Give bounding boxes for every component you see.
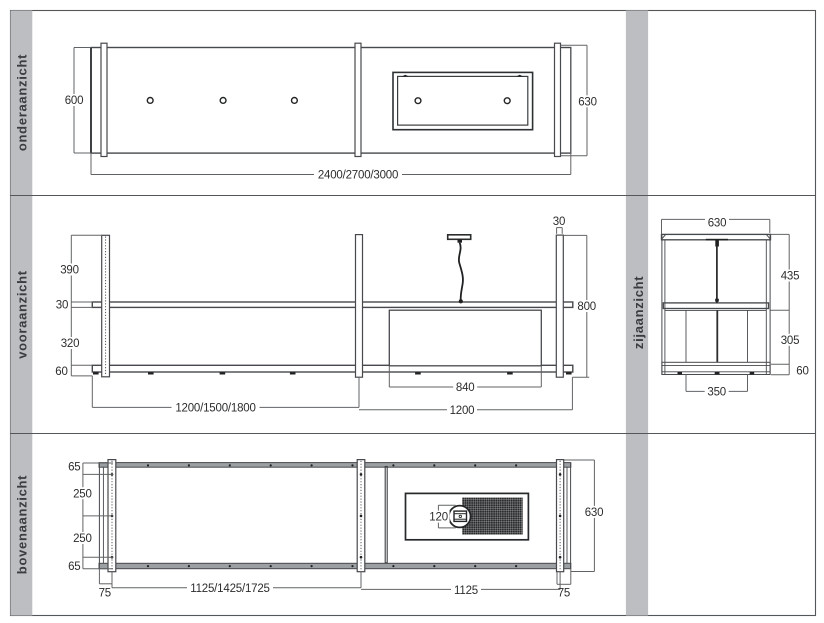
svg-text:1200/1500/1800: 1200/1500/1800 bbox=[175, 403, 255, 415]
svg-text:65: 65 bbox=[68, 561, 80, 573]
svg-text:30: 30 bbox=[56, 300, 68, 312]
svg-text:bovenaanzicht: bovenaanzicht bbox=[14, 475, 29, 574]
svg-text:390: 390 bbox=[60, 265, 79, 277]
svg-text:1125: 1125 bbox=[454, 585, 478, 597]
svg-text:630: 630 bbox=[578, 96, 597, 108]
svg-text:75: 75 bbox=[558, 588, 570, 600]
svg-text:vooraanzicht: vooraanzicht bbox=[14, 270, 29, 359]
svg-text:75: 75 bbox=[99, 588, 111, 600]
svg-text:630: 630 bbox=[585, 507, 604, 519]
svg-text:zijaanzicht: zijaanzicht bbox=[631, 276, 646, 349]
svg-text:2400/2700/3000: 2400/2700/3000 bbox=[318, 170, 398, 182]
svg-text:250: 250 bbox=[73, 533, 92, 545]
svg-text:350: 350 bbox=[707, 387, 726, 399]
svg-text:65: 65 bbox=[68, 462, 80, 474]
svg-text:60: 60 bbox=[796, 365, 808, 377]
svg-text:840: 840 bbox=[456, 382, 475, 394]
svg-text:435: 435 bbox=[781, 271, 800, 283]
svg-text:600: 600 bbox=[65, 95, 84, 107]
svg-text:630: 630 bbox=[708, 218, 727, 230]
svg-text:30: 30 bbox=[553, 216, 565, 228]
svg-text:1125/1425/1725: 1125/1425/1725 bbox=[190, 583, 270, 595]
svg-text:120: 120 bbox=[429, 512, 448, 524]
svg-text:800: 800 bbox=[577, 301, 596, 313]
svg-text:60: 60 bbox=[55, 366, 67, 378]
svg-text:onderaanzicht: onderaanzicht bbox=[14, 54, 29, 151]
svg-text:250: 250 bbox=[73, 488, 92, 500]
svg-text:1200: 1200 bbox=[450, 405, 475, 417]
svg-text:320: 320 bbox=[61, 338, 80, 350]
svg-text:305: 305 bbox=[781, 335, 800, 347]
